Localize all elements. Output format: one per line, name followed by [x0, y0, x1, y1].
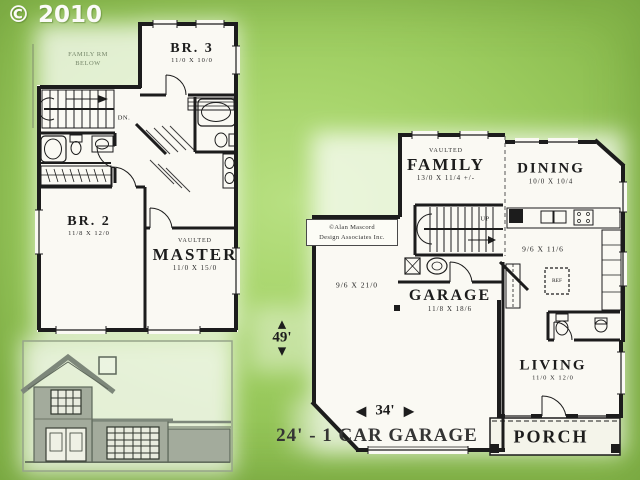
family-room-below-note: FAMILY RM BELOW	[68, 50, 108, 68]
up-stairs-label: UP	[480, 215, 489, 222]
chimney-box	[99, 357, 116, 374]
arrow-up-icon: ▲	[278, 319, 286, 329]
room-label-master: VAULTED MASTER 11/0 X 15/0	[153, 238, 238, 272]
large-window	[107, 427, 159, 459]
room-name: LIVING	[519, 358, 586, 375]
kitchen-dims-label: 9/6 X 11/6	[522, 246, 564, 255]
room-dims: 11/8 X 12/0	[67, 230, 110, 237]
room-name: BR. 2	[67, 214, 110, 230]
depth-dimension: ▲ 49' ▼	[272, 319, 291, 356]
room-dims: 11/0 X 10/0	[170, 57, 213, 64]
room-label-family: VAULTED FAMILY 13/0 X 11/4 +/-	[407, 148, 485, 182]
room-prefix: VAULTED	[153, 238, 238, 245]
room-name: MASTER	[153, 245, 238, 265]
down-stairs-label: DN.	[118, 114, 131, 121]
room-prefix: VAULTED	[407, 148, 485, 155]
room-dims: 10/0 X 10/4	[517, 178, 585, 186]
upper-window	[51, 390, 81, 414]
room-name: BR. 3	[170, 41, 213, 57]
storage-dims-label: 9/6 X 21/0	[336, 282, 378, 291]
room-label-porch: PORCH	[514, 427, 589, 448]
room-dims: 13/0 X 11/4 +/-	[407, 174, 485, 182]
room-label-living: LIVING 11/0 X 12/0	[519, 358, 586, 383]
room-name: FAMILY	[407, 155, 485, 175]
width-dimension: ◀ 34' ▶	[356, 402, 415, 419]
room-name: GARAGE	[409, 287, 491, 305]
room-name: DINING	[517, 160, 585, 177]
house-elevation-drawing	[22, 341, 232, 471]
room-dims: 11/8 X 18/6	[409, 305, 491, 313]
room-label-br3: BR. 3 11/0 X 10/0	[170, 41, 213, 65]
garage-width-note: 24' - 1 CAR GARAGE	[276, 425, 478, 447]
structural-post	[394, 305, 400, 311]
garage-door	[368, 446, 468, 454]
copyright-watermark: © 2010	[7, 2, 102, 28]
arrow-down-icon: ▼	[278, 347, 286, 357]
room-label-br2: BR. 2 11/8 X 12/0	[67, 214, 110, 238]
listing-photo-floorplan: © 2010 FAMILY RM BELOW BR. 3 11/0 X 10/0…	[0, 0, 640, 480]
room-dims: 11/0 X 15/0	[153, 264, 238, 272]
room-name: PORCH	[514, 427, 589, 448]
arrow-left-icon: ◀	[356, 403, 367, 419]
width-value: 34'	[375, 402, 394, 419]
front-door	[46, 428, 86, 461]
room-label-dining: DINING 10/0 X 10/4	[517, 160, 585, 185]
refrigerator-label: REF	[552, 278, 562, 284]
arrow-right-icon: ▶	[404, 403, 415, 419]
room-dims: 11/0 X 12/0	[519, 375, 586, 382]
room-label-garage: GARAGE 11/8 X 18/6	[409, 287, 491, 313]
designer-watermark: ©Alan Mascord Design Associates Inc.	[306, 219, 398, 246]
